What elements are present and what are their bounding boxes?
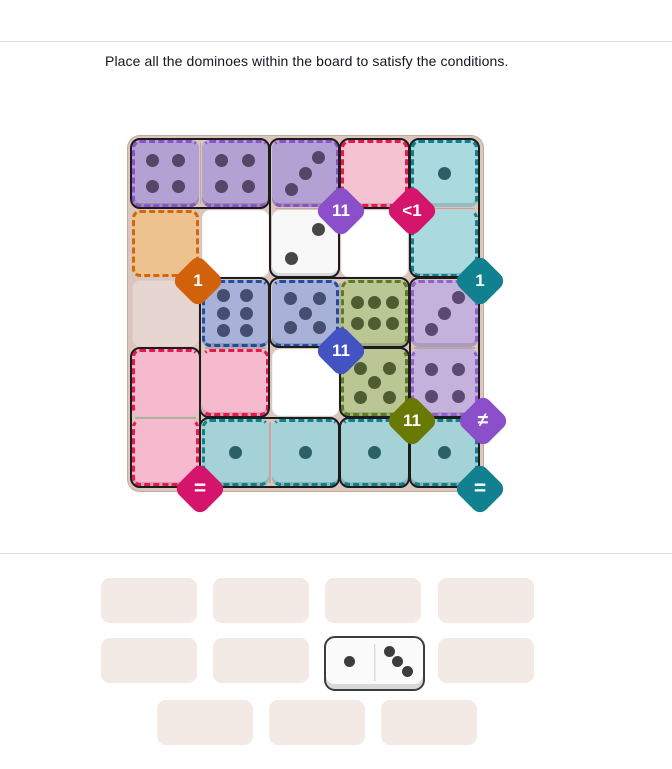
pip [452, 363, 465, 376]
pip [240, 324, 253, 337]
region-border [202, 140, 269, 207]
pip [438, 307, 451, 320]
board-cell-r4c2[interactable] [202, 349, 269, 416]
pip [386, 317, 399, 330]
tray-slot [213, 578, 309, 623]
condition-badge-label: 1 [179, 262, 217, 300]
condition-badge-label: 1 [461, 262, 499, 300]
pip [368, 296, 381, 309]
pip [384, 646, 395, 657]
instruction-text: Place all the dominoes within the board … [105, 53, 509, 69]
region-border [132, 349, 199, 416]
board-cell-r5c3[interactable] [272, 419, 339, 486]
tray-slot [269, 700, 365, 745]
condition-badge: 11 [322, 192, 360, 230]
pip [215, 180, 228, 193]
pip [299, 167, 312, 180]
condition-badge-label: 11 [322, 192, 360, 230]
tray-slot [157, 700, 253, 745]
domino-divider [269, 422, 271, 483]
top-divider [0, 41, 672, 42]
tray-slot [381, 700, 477, 745]
pip [344, 656, 355, 667]
pip [284, 292, 297, 305]
pip [392, 656, 403, 667]
domino-divider [200, 143, 202, 204]
board-cell-r1c2[interactable] [202, 140, 269, 207]
condition-badge: <1 [393, 192, 431, 230]
pip [285, 252, 298, 265]
tray-slot [325, 578, 421, 623]
pip [351, 317, 364, 330]
tray-slot [101, 638, 197, 683]
pip [425, 323, 438, 336]
pip [285, 183, 298, 196]
condition-badge: 11 [393, 402, 431, 440]
pip [242, 154, 255, 167]
pip [146, 154, 159, 167]
pip [438, 446, 451, 459]
pip [351, 296, 364, 309]
pip [313, 292, 326, 305]
pip [217, 289, 230, 302]
tray-slot [438, 638, 534, 683]
condition-badge-label: = [181, 470, 219, 508]
condition-badge: 1 [179, 262, 217, 300]
region-border [202, 349, 269, 416]
pip [299, 307, 312, 320]
pip [383, 362, 396, 375]
condition-badge-label: 11 [322, 332, 360, 370]
condition-badge-label: ≠ [464, 402, 502, 440]
condition-badge: 11 [322, 332, 360, 370]
pip [312, 151, 325, 164]
region-border [132, 140, 199, 207]
tray-domino-half [326, 638, 375, 689]
condition-badge-label: = [461, 470, 499, 508]
pip [242, 180, 255, 193]
pip [368, 317, 381, 330]
tray-divider [0, 553, 672, 554]
pip [240, 307, 253, 320]
pip [229, 446, 242, 459]
pip [425, 363, 438, 376]
pip [368, 376, 381, 389]
pip [172, 154, 185, 167]
tray-domino-half [375, 638, 424, 689]
pip [217, 324, 230, 337]
board-cell-r1c1[interactable] [132, 140, 199, 207]
pip [386, 296, 399, 309]
tray-slot [438, 578, 534, 623]
condition-badge: = [181, 470, 219, 508]
pip [402, 666, 413, 677]
pip [215, 154, 228, 167]
pip [217, 307, 230, 320]
pip [172, 180, 185, 193]
condition-badge-label: <1 [393, 192, 431, 230]
pip [146, 180, 159, 193]
pip [452, 390, 465, 403]
pip [354, 391, 367, 404]
pip [299, 446, 312, 459]
pip [240, 289, 253, 302]
pip [284, 321, 297, 334]
condition-badge: 1 [461, 262, 499, 300]
pip [425, 390, 438, 403]
pip [438, 167, 451, 180]
tray-slot [101, 578, 197, 623]
condition-badge: ≠ [464, 402, 502, 440]
board-cell-r4c1[interactable] [132, 349, 199, 416]
condition-badge-label: 11 [393, 402, 431, 440]
tray-slot [213, 638, 309, 683]
pip [368, 446, 381, 459]
puzzle-board: 11<1111111≠== [127, 135, 484, 492]
condition-badge: = [461, 470, 499, 508]
tray-domino[interactable] [324, 636, 425, 691]
